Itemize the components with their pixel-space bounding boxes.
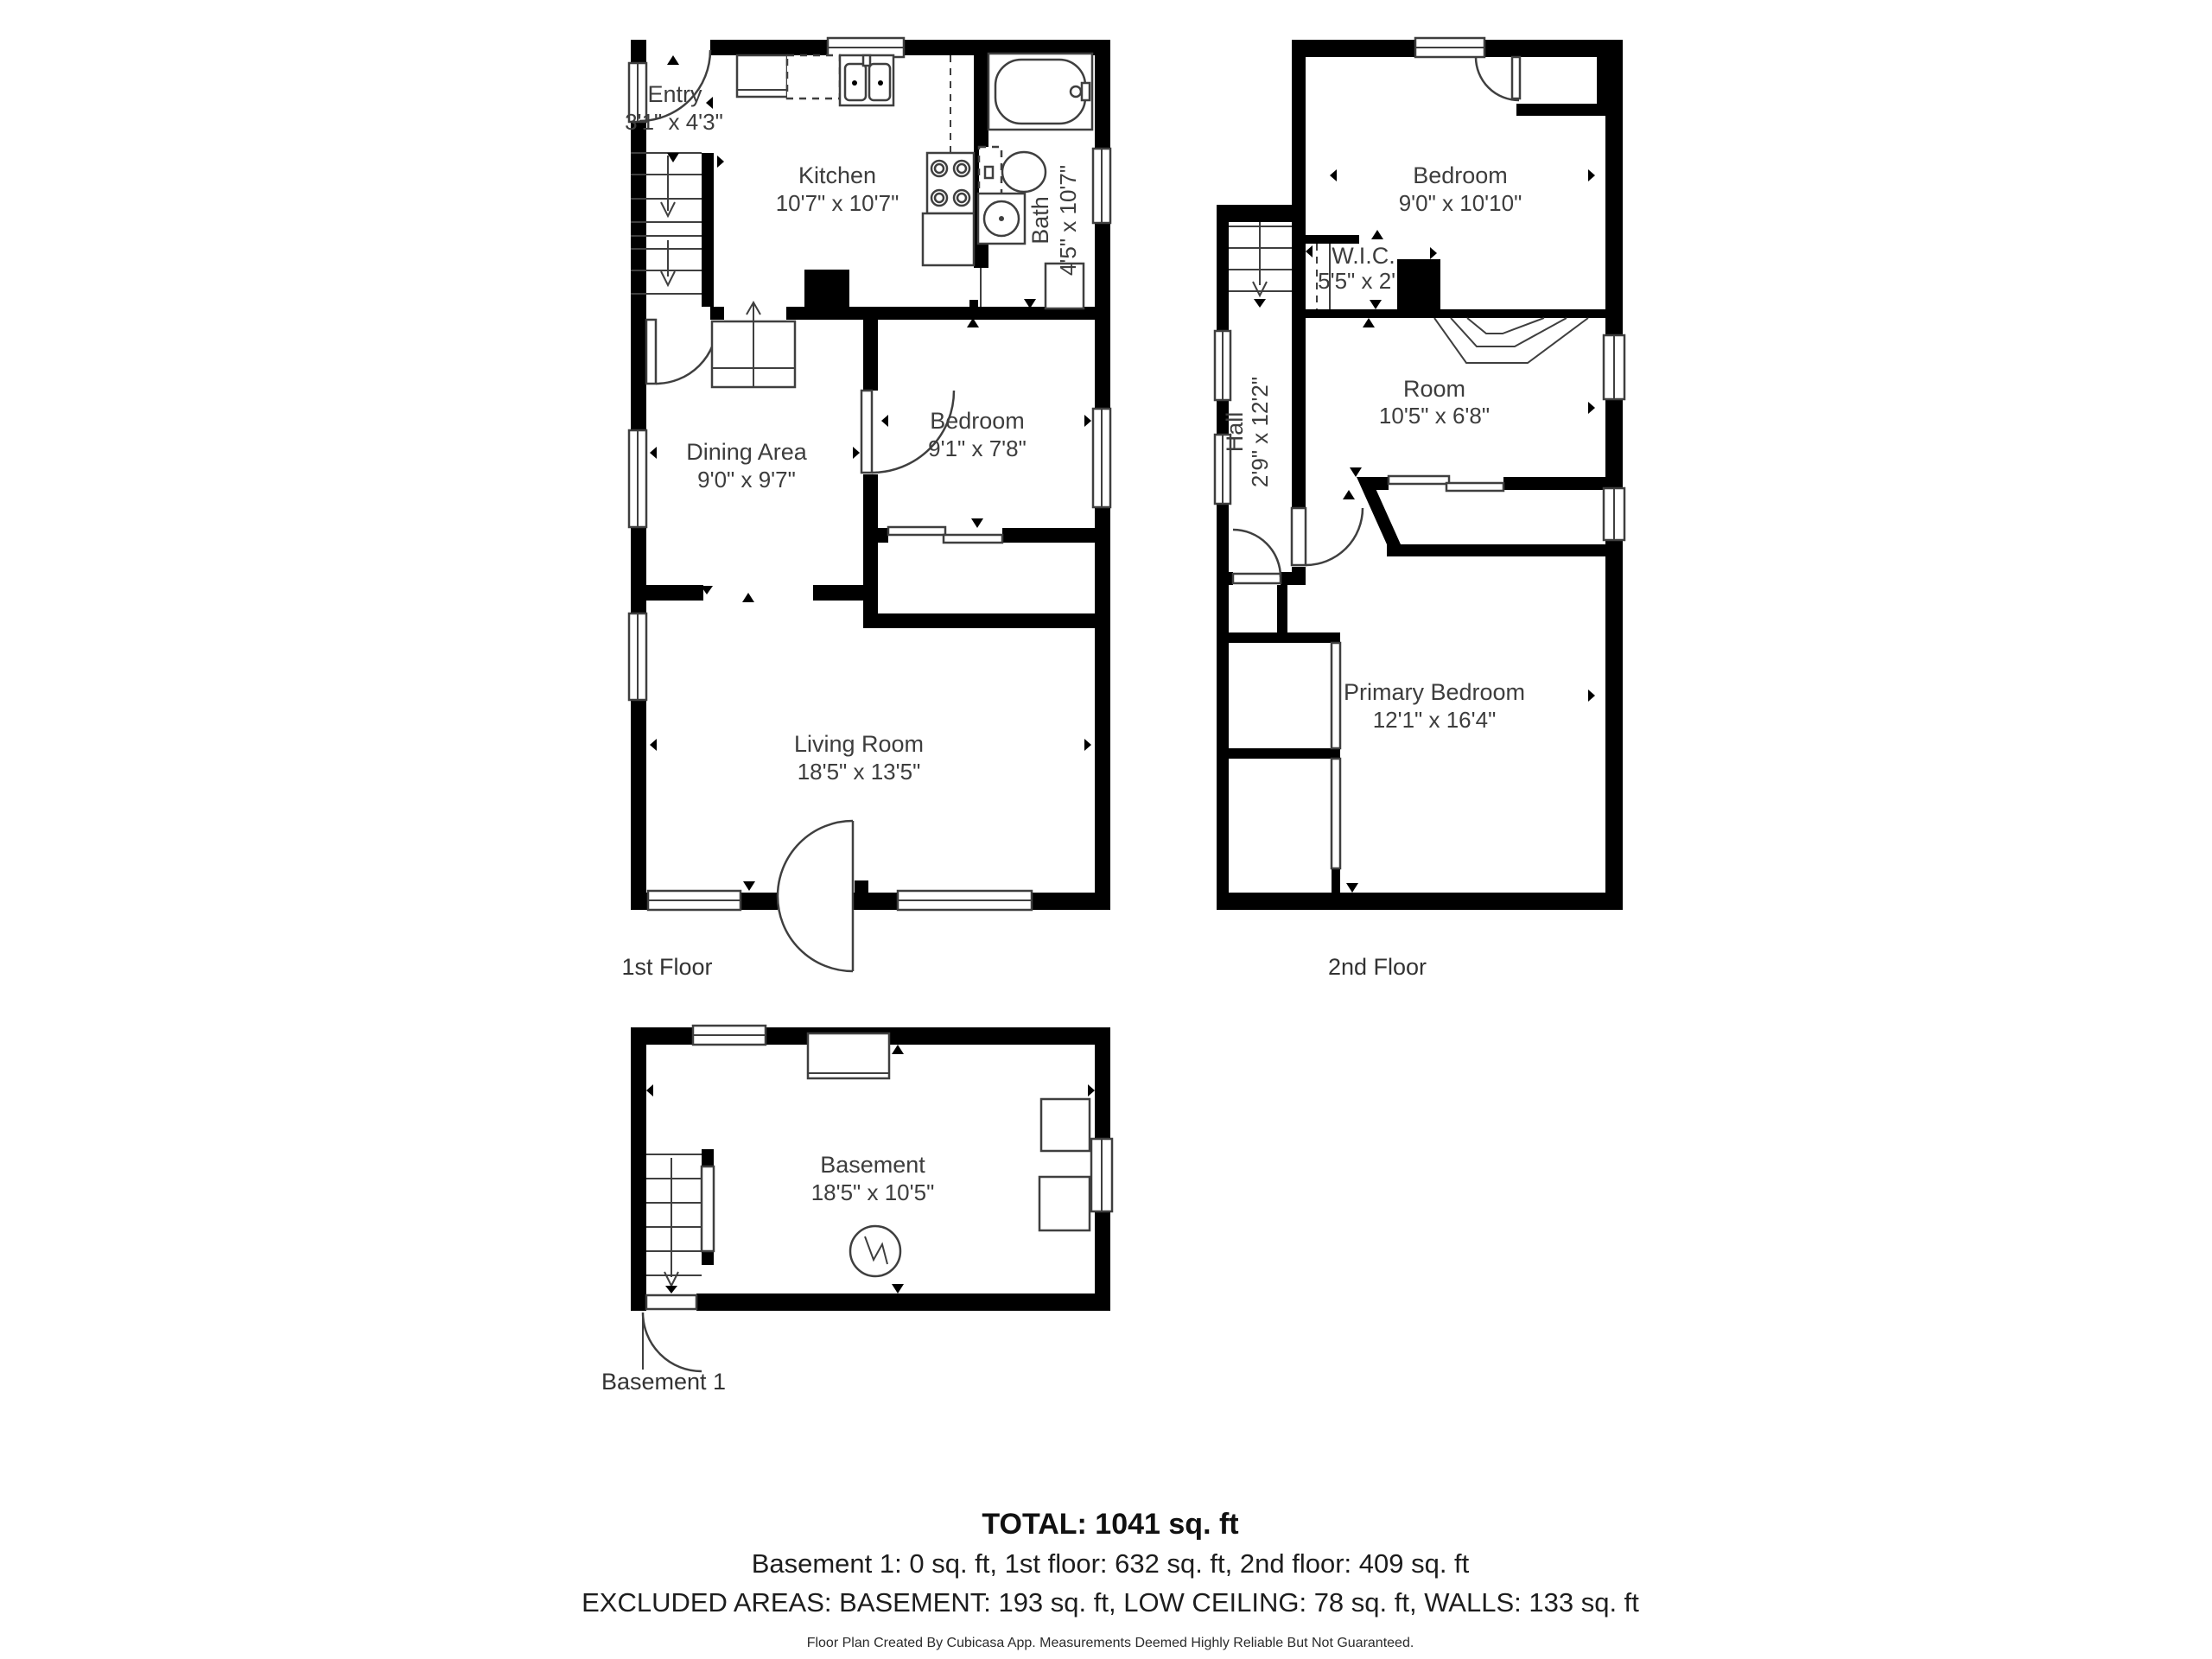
window [693, 1026, 766, 1045]
dishwasher [787, 55, 840, 99]
window [1093, 149, 1110, 223]
room-door [1292, 508, 1363, 565]
kitchen-sink [840, 55, 893, 105]
window [828, 38, 904, 57]
room-dims: 9'0" x 10'10" [1399, 190, 1522, 216]
room-label: Entry [647, 81, 702, 107]
kitchen-counter [737, 55, 787, 97]
furnace [808, 1033, 889, 1078]
window [1215, 331, 1230, 400]
room-label: Bath [1027, 196, 1053, 245]
basement-door [643, 1295, 702, 1371]
room-living: Living Room 18'5" x 13'5" [794, 731, 924, 785]
room-basement: Basement 18'5" x 10'5" [811, 1152, 935, 1205]
floor-label-second: 2nd Floor [1328, 954, 1427, 980]
room-room: Room 10'5" x 6'8" [1379, 376, 1490, 429]
excluded-areas-text: EXCLUDED AREAS: BASEMENT: 193 sq. ft, LO… [582, 1587, 1639, 1618]
floor-label-basement: Basement 1 [601, 1369, 726, 1395]
window [629, 613, 646, 700]
washer [1041, 1099, 1090, 1151]
bathroom-sink [978, 194, 1025, 244]
window [629, 430, 646, 527]
hall-door [1233, 530, 1281, 583]
kitchen-counter-lower [923, 213, 974, 265]
window [1389, 476, 1503, 491]
window [1604, 488, 1624, 540]
room-label: W.I.C. [1332, 243, 1395, 269]
closet-sliding-doors [888, 527, 1002, 543]
room-dims: 10'7" x 10'7" [776, 190, 899, 216]
window [648, 891, 741, 910]
total-area-text: TOTAL: 1041 sq. ft [982, 1508, 1238, 1541]
window [1415, 38, 1484, 57]
dining-door [646, 320, 717, 384]
stairs-basement [646, 1154, 714, 1294]
second-floor-plan: Bedroom 9'0" x 10'10" W.I.C. 5'5" x 2'1"… [1215, 38, 1624, 980]
stair-opening-trapezoids [1434, 318, 1588, 363]
room-dims: 12'1" x 16'4" [1373, 707, 1497, 733]
stair-landing-box [712, 302, 795, 387]
bathtub [988, 54, 1092, 130]
room-label: Dining Area [686, 439, 808, 465]
room-bedroom-first: Bedroom 9'1" x 7'8" [928, 408, 1027, 461]
room-label: Hall [1222, 412, 1248, 453]
room-kitchen: Kitchen 10'7" x 10'7" [776, 162, 899, 216]
room-label: Primary Bedroom [1344, 679, 1525, 705]
window [1604, 335, 1624, 399]
room-dims: 2'9" x 12'2" [1247, 377, 1273, 487]
room-wic: W.I.C. 5'5" x 2'1" [1318, 243, 1440, 318]
room-label: Living Room [794, 731, 924, 757]
stair-railing [702, 1166, 714, 1251]
floor-label-first: 1st Floor [621, 954, 712, 980]
dryer [1039, 1177, 1090, 1230]
window [1091, 1139, 1112, 1211]
room-dims: 18'5" x 10'5" [811, 1179, 935, 1205]
room-dims: 9'1" x 7'8" [928, 435, 1027, 461]
room-label: Basement [820, 1152, 925, 1178]
closet-door [1476, 57, 1520, 100]
room-label: Kitchen [798, 162, 876, 188]
floor-plan-canvas: Entry 3'1" x 4'3" Kitchen 10'7" x 10'7" … [0, 0, 2212, 1659]
room-dims: 10'5" x 6'8" [1379, 403, 1490, 429]
stairs-second-floor [1229, 222, 1292, 308]
stove [927, 153, 974, 213]
room-dims: 3'1" x 4'3" [625, 109, 723, 135]
summary-block: TOTAL: 1041 sq. ft Basement 1: 0 sq. ft,… [582, 1508, 1639, 1650]
disclaimer-text: Floor Plan Created By Cubicasa App. Meas… [807, 1636, 1414, 1650]
chimney-block [804, 270, 849, 320]
room-primary-bedroom: Primary Bedroom 12'1" x 16'4" [1344, 679, 1525, 733]
room-label: Bedroom [1413, 162, 1508, 188]
room-dims: 18'5" x 13'5" [798, 759, 921, 785]
room-dims: 9'0" x 9'7" [697, 467, 796, 493]
room-label: Bedroom [930, 408, 1025, 434]
toilet [979, 147, 1046, 197]
basement-plan: Basement 18'5" x 10'5" Basement 1 [601, 1026, 1112, 1395]
window [1093, 409, 1110, 507]
room-label: Room [1403, 376, 1465, 402]
front-door [778, 821, 853, 971]
water-heater [850, 1226, 900, 1276]
room-dining: Dining Area 9'0" x 9'7" [686, 439, 808, 493]
room-dims: 4'5" x 10'7" [1055, 165, 1081, 276]
floor-plan-page: Entry 3'1" x 4'3" Kitchen 10'7" x 10'7" … [0, 0, 2212, 1659]
first-floor-plan: Entry 3'1" x 4'3" Kitchen 10'7" x 10'7" … [621, 38, 1110, 980]
floor-breakdown-text: Basement 1: 0 sq. ft, 1st floor: 632 sq.… [752, 1548, 1470, 1579]
wall-stub [855, 880, 868, 893]
room-bedroom-second: Bedroom 9'0" x 10'10" [1399, 162, 1522, 216]
window [898, 891, 1032, 910]
